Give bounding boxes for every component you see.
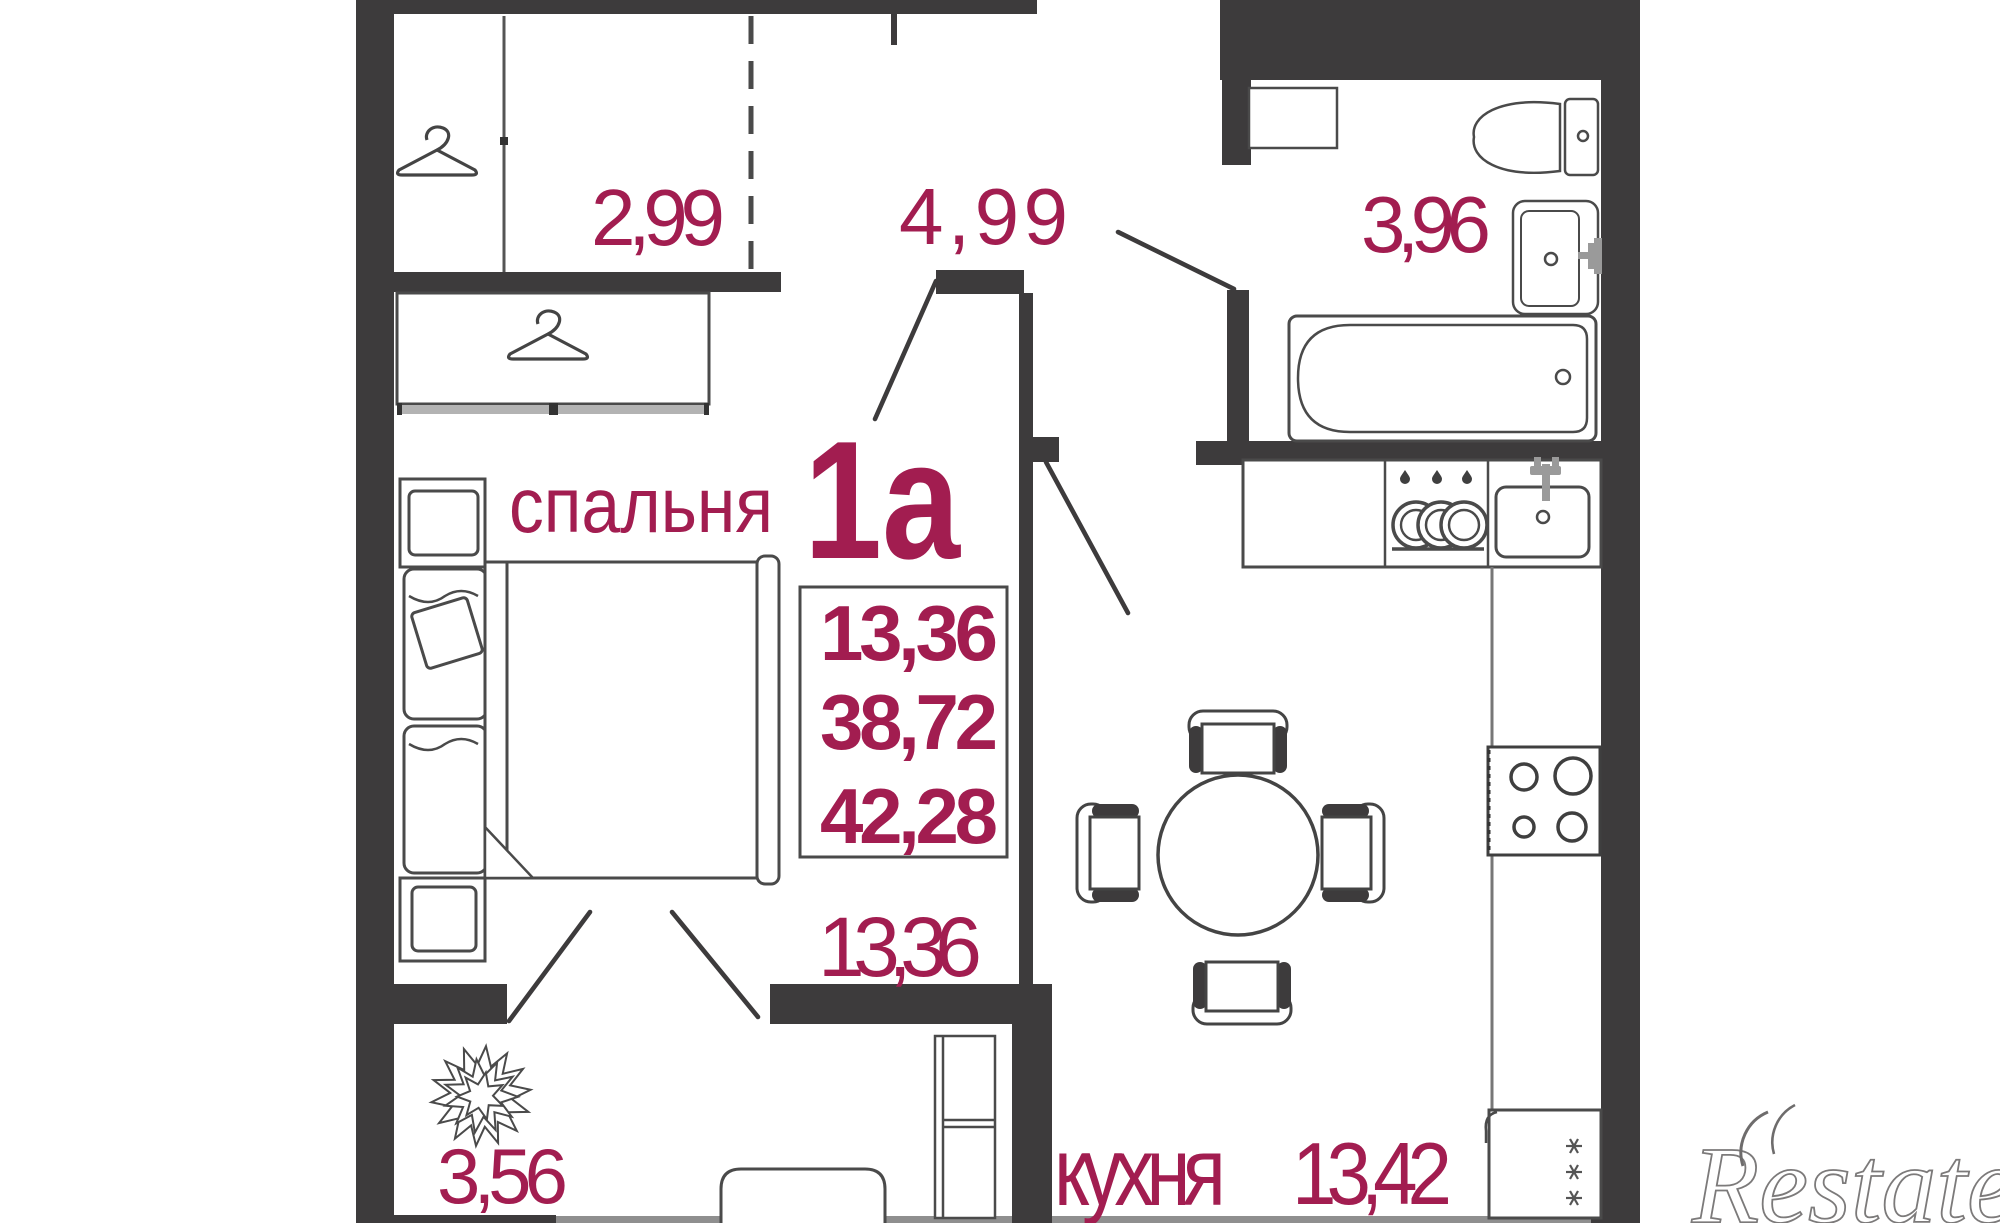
svg-text:13,36: 13,36 <box>818 900 982 994</box>
svg-text:13,36: 13,36 <box>820 589 998 677</box>
svg-text:кухня: кухня <box>1054 1116 1226 1223</box>
svg-text:3,56: 3,56 <box>437 1132 568 1220</box>
svg-text:38,72: 38,72 <box>820 678 998 766</box>
svg-text:4,99: 4,99 <box>899 172 1068 261</box>
svg-text:13,42: 13,42 <box>1292 1124 1452 1222</box>
svg-text:42,28: 42,28 <box>820 772 998 860</box>
svg-text:2,99: 2,99 <box>591 173 725 262</box>
svg-text:1а: 1а <box>804 406 961 594</box>
svg-text:спальня: спальня <box>509 461 773 549</box>
svg-text:3,96: 3,96 <box>1361 180 1491 269</box>
svg-text:Restate: Restate <box>1691 1124 2000 1223</box>
